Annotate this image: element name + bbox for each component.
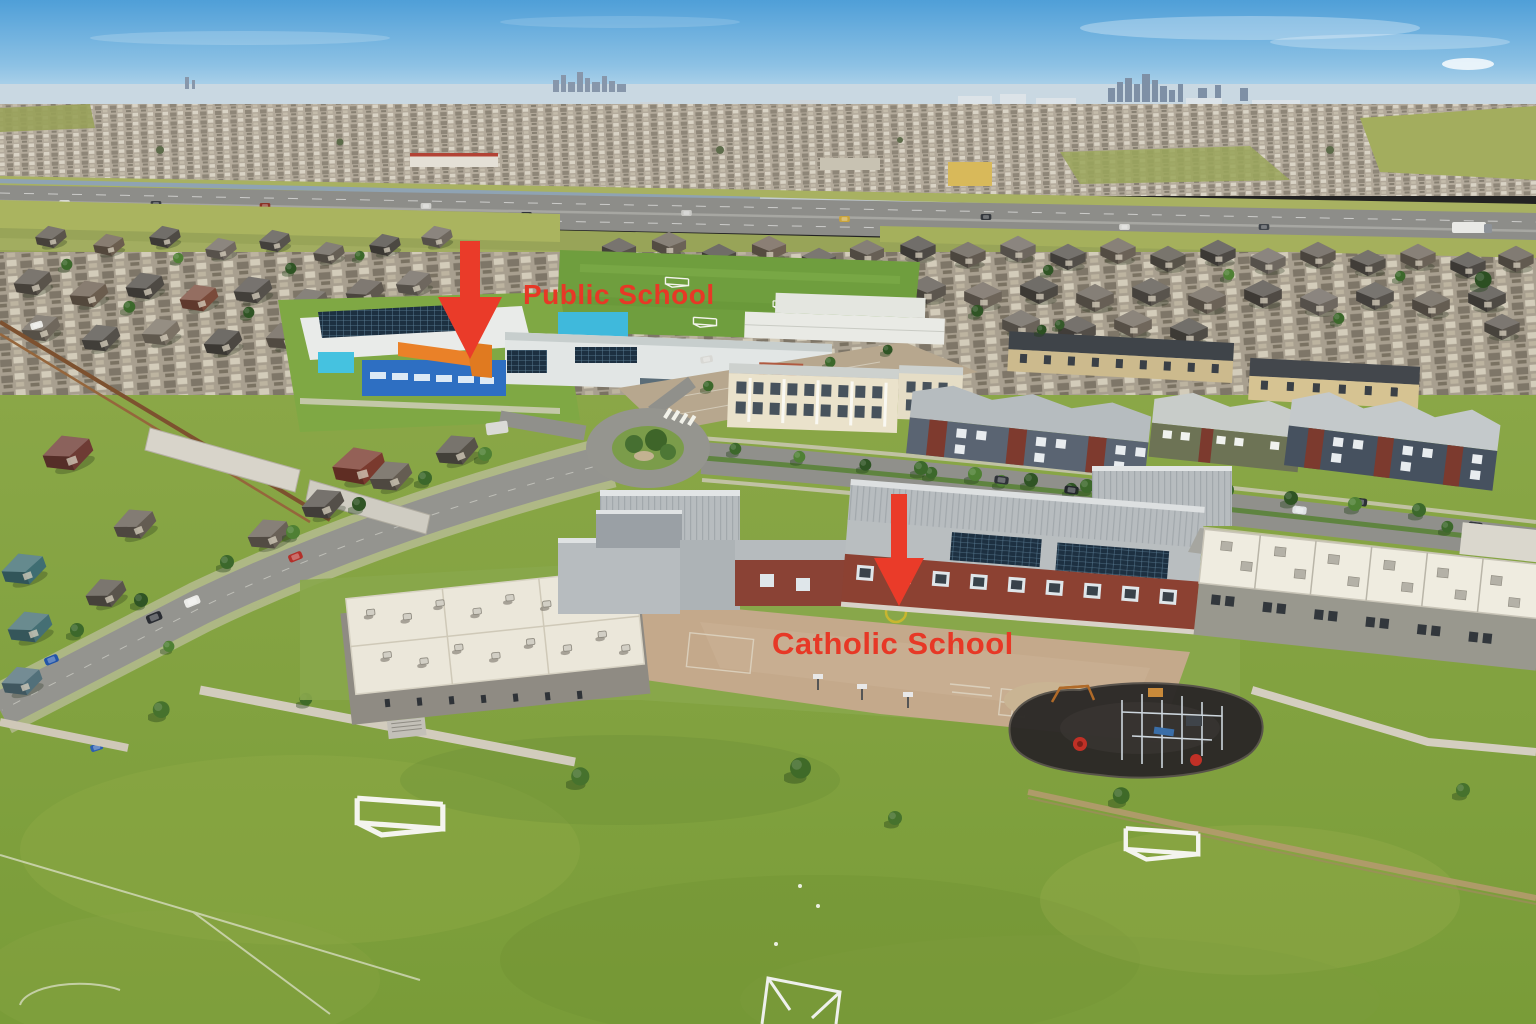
aerial-photo: Public School Catholic School	[0, 0, 1536, 1024]
link-building	[735, 540, 850, 606]
aerial-photo-canvas	[0, 0, 1536, 1024]
playground	[1004, 682, 1263, 778]
sky	[0, 0, 1536, 118]
